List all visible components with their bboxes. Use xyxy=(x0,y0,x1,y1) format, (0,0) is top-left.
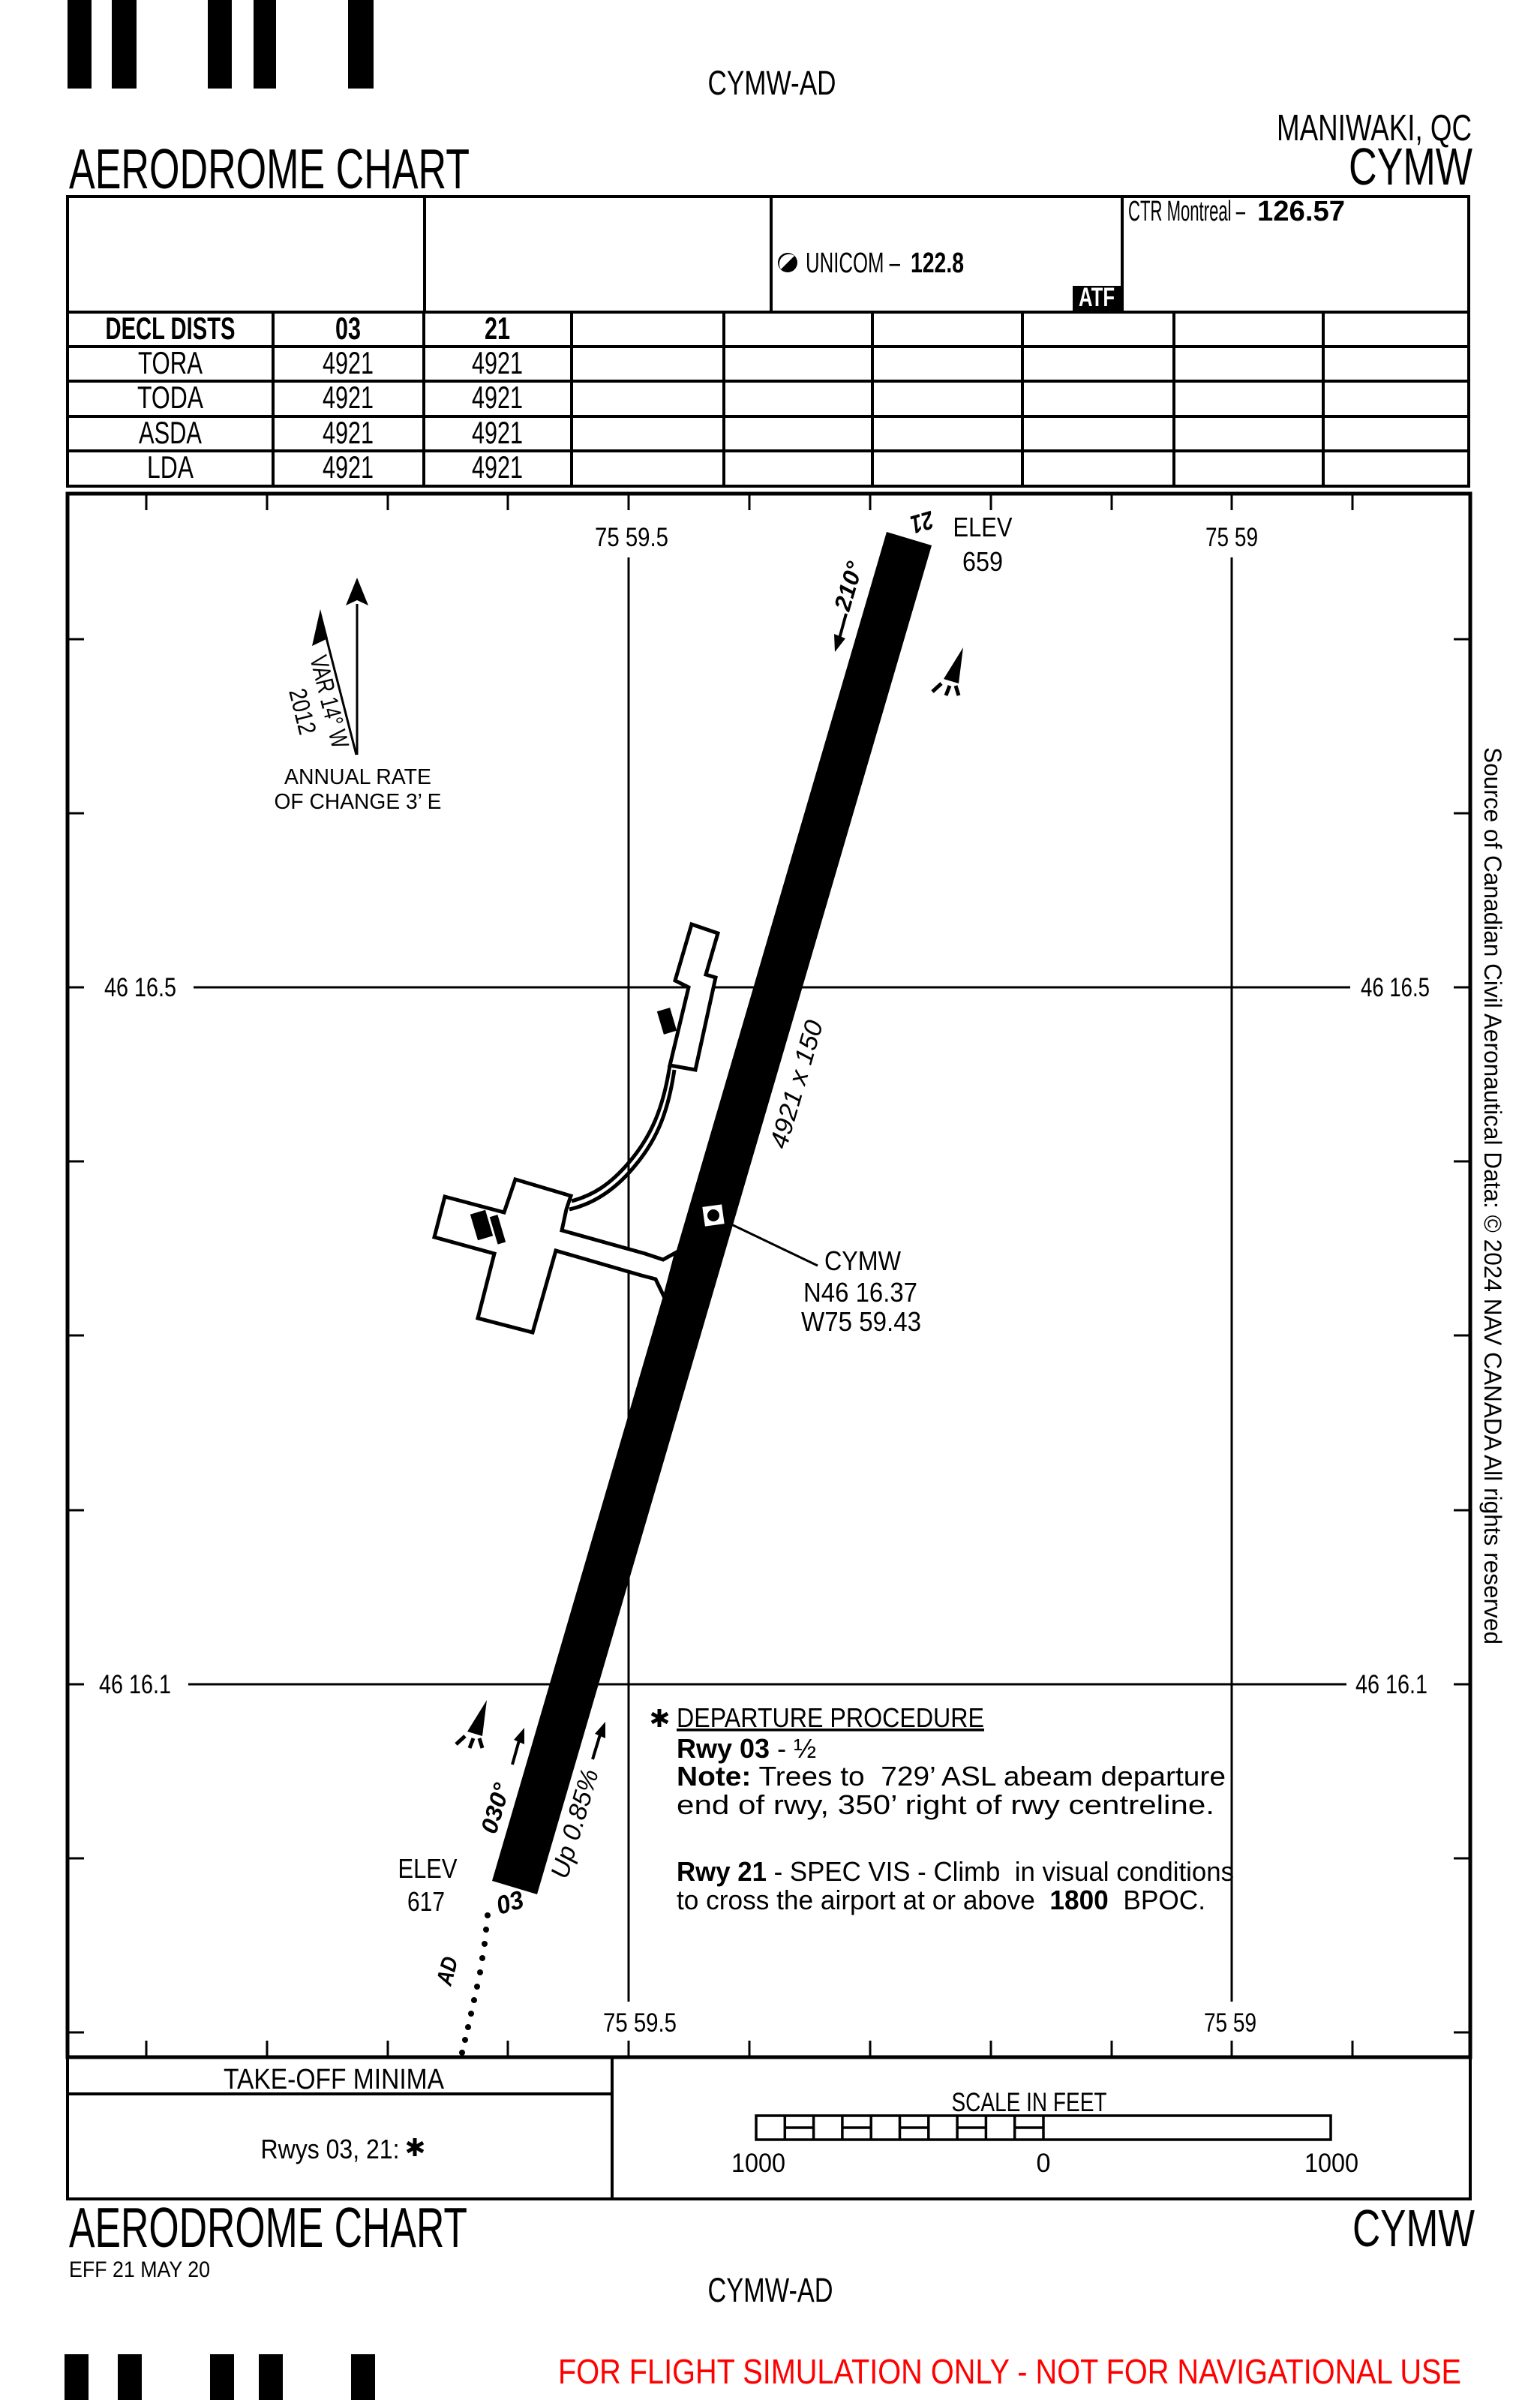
svg-text:Rwy 21 - SPEC VIS - Climb in: Rwy 21 - SPEC VIS - Climb in visual cond… xyxy=(677,1856,1234,1887)
svg-text:75 59: 75 59 xyxy=(1204,2008,1256,2038)
svg-text:75 59.5: 75 59.5 xyxy=(603,2008,677,2038)
svg-text:N46 16.37: N46 16.37 xyxy=(803,1277,917,1308)
svg-text:03: 03 xyxy=(335,311,361,346)
svg-text:DEPARTURE PROCEDURE: DEPARTURE PROCEDURE xyxy=(677,1702,984,1733)
svg-text:46 16.1: 46 16.1 xyxy=(1355,1670,1427,1699)
svg-text:4921: 4921 xyxy=(323,345,374,380)
svg-text:CYMW: CYMW xyxy=(1349,137,1472,196)
svg-text:Note: Trees to 729’ ASL abeam: Note: Trees to 729’ ASL abeam departure xyxy=(677,1761,1226,1792)
svg-text:SCALE IN FEET: SCALE IN FEET xyxy=(952,2088,1107,2117)
svg-text:LDA: LDA xyxy=(147,449,194,485)
svg-text:CYMW-AD: CYMW-AD xyxy=(708,2271,833,2309)
svg-text:659: 659 xyxy=(962,546,1003,577)
svg-text:Source of Canadian Civil Aeron: Source of Canadian Civil Aeronautical Da… xyxy=(1479,747,1506,1645)
svg-text:ELEV: ELEV xyxy=(398,1853,458,1884)
svg-text:W75 59.43: W75 59.43 xyxy=(801,1306,921,1337)
svg-text:1000: 1000 xyxy=(731,2149,785,2178)
svg-text:4921: 4921 xyxy=(472,449,523,485)
svg-text:75 59.5: 75 59.5 xyxy=(595,523,668,552)
svg-text:46 16.5: 46 16.5 xyxy=(1361,973,1430,1002)
svg-text:122.8: 122.8 xyxy=(911,248,964,279)
svg-text:Rwy 03 - ½: Rwy 03 - ½ xyxy=(677,1733,816,1764)
svg-text:4921: 4921 xyxy=(472,415,523,450)
svg-text:46 16.1: 46 16.1 xyxy=(99,1670,171,1699)
svg-text:617: 617 xyxy=(407,1886,445,1917)
svg-text:75 59: 75 59 xyxy=(1205,523,1258,552)
svg-text:FOR FLIGHT SIMULATION ONLY - N: FOR FLIGHT SIMULATION ONLY - NOT FOR NAV… xyxy=(558,2352,1461,2391)
svg-text:4921: 4921 xyxy=(323,449,374,485)
svg-text:AERODROME CHART: AERODROME CHART xyxy=(69,137,470,200)
svg-text:46 16.5: 46 16.5 xyxy=(104,973,176,1002)
svg-text:4921: 4921 xyxy=(323,380,374,415)
svg-text:0: 0 xyxy=(1037,2149,1051,2178)
svg-text:CYMW: CYMW xyxy=(824,1245,901,1276)
svg-text:TODA: TODA xyxy=(137,380,203,415)
svg-text:21: 21 xyxy=(485,311,510,346)
svg-text:EFF 21 MAY 20: EFF 21 MAY 20 xyxy=(69,2257,210,2282)
svg-text:TAKE-OFF MINIMA: TAKE-OFF MINIMA xyxy=(224,2064,445,2095)
svg-text:ANNUAL RATE: ANNUAL RATE xyxy=(284,765,431,789)
svg-text:ATF: ATF xyxy=(1079,283,1115,312)
svg-text:end of rwy, 350’ right of rwy: end of rwy, 350’ right of rwy centreline… xyxy=(677,1789,1214,1820)
svg-text:ASDA: ASDA xyxy=(139,415,202,450)
svg-text:1000: 1000 xyxy=(1304,2149,1358,2178)
svg-text:AERODROME CHART: AERODROME CHART xyxy=(69,2196,467,2259)
svg-text:CYMW: CYMW xyxy=(1352,2199,1475,2257)
svg-text:Rwys 03, 21:: Rwys 03, 21: xyxy=(261,2134,400,2164)
svg-text:TORA: TORA xyxy=(138,345,203,380)
svg-text:OF CHANGE 3’ E: OF CHANGE 3’ E xyxy=(275,790,442,814)
svg-text:ELEV: ELEV xyxy=(953,512,1013,542)
svg-text:126.57: 126.57 xyxy=(1257,196,1345,227)
svg-text:CTR Montreal –: CTR Montreal – xyxy=(1128,196,1245,227)
svg-text:4921: 4921 xyxy=(472,380,523,415)
svg-text:4921: 4921 xyxy=(323,415,374,450)
svg-text:CYMW-AD: CYMW-AD xyxy=(708,64,836,102)
svg-text:UNICOM –: UNICOM – xyxy=(806,248,901,279)
svg-text:4921: 4921 xyxy=(472,345,523,380)
svg-text:to cross the airport at or abo: to cross the airport at or above 1800 BP… xyxy=(677,1885,1205,1915)
svg-text:DECL DISTS: DECL DISTS xyxy=(106,311,236,346)
